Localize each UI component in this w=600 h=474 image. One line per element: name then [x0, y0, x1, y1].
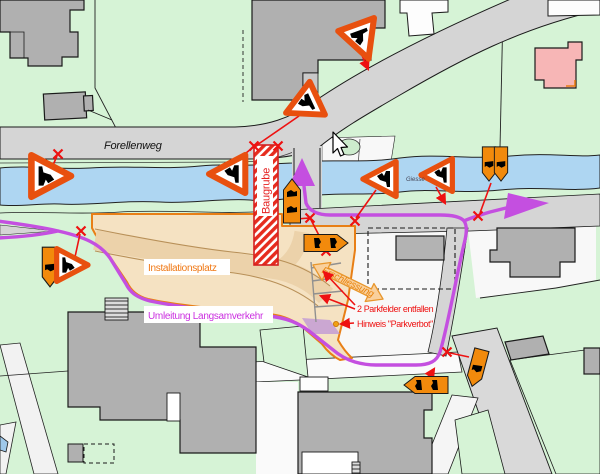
parkverbot-note: Hinweis "Parkverbot": [357, 319, 433, 329]
stairs: [105, 298, 128, 320]
shed: [68, 444, 83, 462]
stairs: [352, 462, 360, 474]
river-label: Giesse: [406, 177, 425, 183]
building: [584, 348, 600, 374]
map-canvas[interactable]: Baugrube Erschliessung 2 Par: [0, 0, 600, 474]
parkverbot-marker: [333, 321, 338, 326]
street-label: Forellenweg: [104, 140, 163, 152]
installationsplatz-label: Installationsplatz: [148, 263, 217, 274]
baugrube-label: Baugrube: [261, 168, 273, 214]
building: [0, 0, 84, 66]
baugrube-strip: Baugrube: [254, 145, 278, 265]
parking-note: 2 Parkfelder entfallen: [357, 304, 434, 314]
umleitung-label: Umleitung Langsamverkehr: [148, 311, 264, 322]
building: [43, 92, 86, 120]
building-outline: [548, 0, 600, 16]
construction-traffic-plan: Baugrube Erschliessung 2 Par: [0, 0, 600, 474]
